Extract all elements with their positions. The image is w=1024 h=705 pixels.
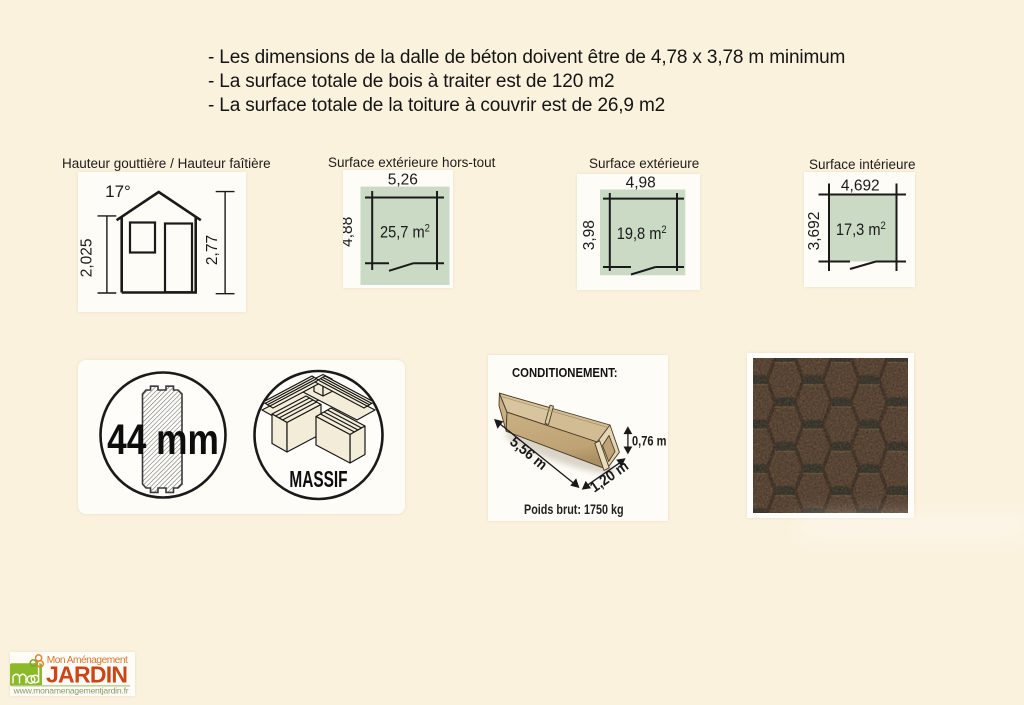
svg-text:44 mm: 44 mm: [107, 416, 219, 464]
svg-text:2,025: 2,025: [79, 239, 96, 278]
svg-text:www.monamenagementjardin.fr: www.monamenagementjardin.fr: [12, 685, 128, 695]
svg-text:3,98: 3,98: [581, 220, 598, 250]
svg-text:5,26: 5,26: [388, 172, 418, 189]
svg-text:4,692: 4,692: [841, 178, 880, 195]
svg-text:25,7 m2: 25,7 m2: [380, 223, 430, 242]
svg-text:2,77: 2,77: [204, 235, 221, 265]
svg-text:3,692: 3,692: [806, 212, 823, 251]
svg-text:0,76 m: 0,76 m: [632, 433, 666, 448]
svg-text:17,3 m2: 17,3 m2: [836, 220, 886, 239]
svg-text:17°: 17°: [105, 182, 131, 201]
svg-text:19,8 m2: 19,8 m2: [617, 224, 667, 243]
svg-text:MASSIF: MASSIF: [289, 467, 347, 493]
svg-text:4,98: 4,98: [626, 175, 656, 192]
svg-text:JARDIN: JARDIN: [46, 661, 128, 687]
svg-text:4,88: 4,88: [343, 217, 356, 247]
